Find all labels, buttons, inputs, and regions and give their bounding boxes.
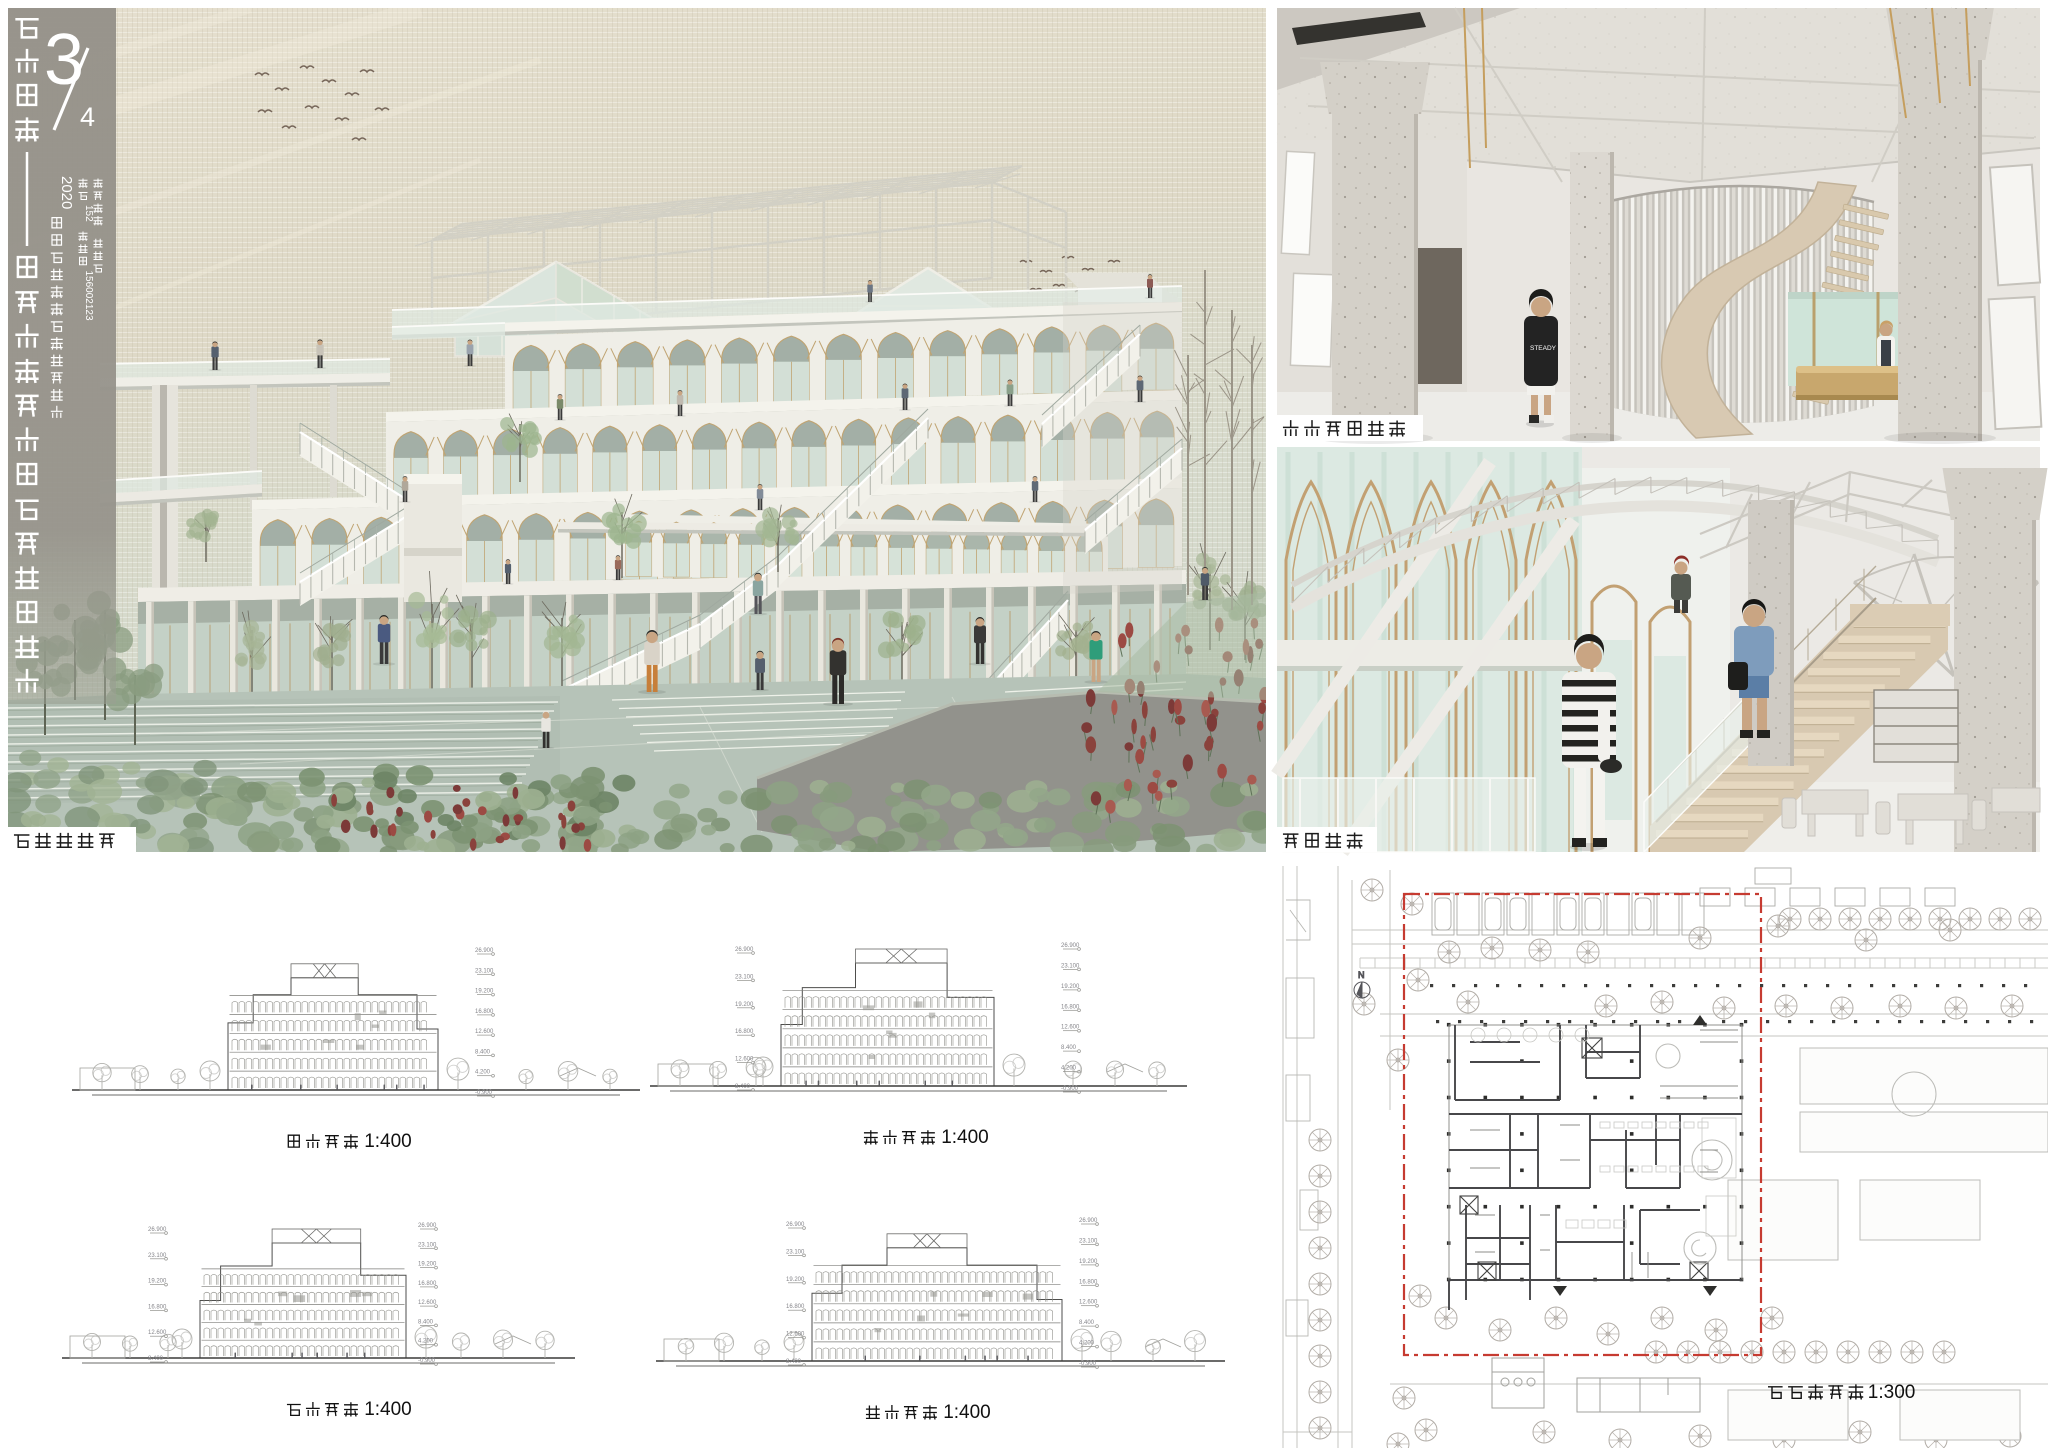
svg-text:-0.900: -0.900 — [475, 1090, 493, 1096]
svg-text:19.200: 19.200 — [148, 1279, 167, 1285]
svg-text:1:300: 1:300 — [1868, 1382, 1916, 1403]
svg-text:4.200: 4.200 — [418, 1339, 434, 1345]
svg-text:19.200: 19.200 — [735, 1002, 754, 1008]
svg-text:16.800: 16.800 — [418, 1281, 437, 1287]
svg-text:1:400: 1:400 — [943, 1402, 991, 1423]
svg-text:8.400: 8.400 — [1061, 1045, 1077, 1051]
svg-text:1:400: 1:400 — [364, 1131, 412, 1152]
svg-text:-0.900: -0.900 — [1079, 1361, 1097, 1367]
svg-text:4.200: 4.200 — [1061, 1066, 1077, 1072]
svg-text:156002123: 156002123 — [83, 271, 94, 321]
svg-text:23.100: 23.100 — [148, 1253, 167, 1259]
svg-text:8.400: 8.400 — [475, 1049, 491, 1055]
svg-text:19.200: 19.200 — [1061, 984, 1080, 990]
svg-text:26.900: 26.900 — [475, 948, 494, 954]
svg-text:19.200: 19.200 — [1079, 1259, 1098, 1265]
svg-text:19.200: 19.200 — [786, 1277, 805, 1283]
svg-text:STEADY: STEADY — [1530, 345, 1557, 352]
svg-text:-0.900: -0.900 — [1061, 1086, 1079, 1092]
svg-text:16.800: 16.800 — [786, 1304, 805, 1310]
svg-text:26.900: 26.900 — [735, 947, 754, 953]
svg-text:3: 3 — [44, 20, 84, 100]
svg-text:23.100: 23.100 — [786, 1249, 805, 1255]
svg-text:12.600: 12.600 — [475, 1029, 494, 1035]
svg-text:1:400: 1:400 — [364, 1399, 412, 1420]
svg-text:4: 4 — [80, 102, 95, 132]
svg-text:23.100: 23.100 — [1079, 1238, 1098, 1244]
svg-text:4.200: 4.200 — [1079, 1341, 1095, 1347]
svg-text:12.600: 12.600 — [148, 1330, 167, 1336]
svg-text:26.900: 26.900 — [418, 1223, 437, 1229]
svg-text:2020: 2020 — [58, 176, 75, 209]
svg-text:26.900: 26.900 — [786, 1222, 805, 1228]
svg-text:8.400: 8.400 — [418, 1319, 434, 1325]
svg-text:16.800: 16.800 — [735, 1029, 754, 1035]
svg-text:16.800: 16.800 — [148, 1304, 167, 1310]
svg-text:16.800: 16.800 — [1061, 1004, 1080, 1010]
svg-text:8.400: 8.400 — [786, 1359, 802, 1365]
svg-text:23.100: 23.100 — [475, 968, 494, 974]
svg-text:152: 152 — [83, 205, 94, 222]
svg-text:23.100: 23.100 — [418, 1242, 437, 1248]
svg-text:12.600: 12.600 — [1061, 1025, 1080, 1031]
svg-text:12.600: 12.600 — [786, 1332, 805, 1338]
svg-text:26.900: 26.900 — [1079, 1218, 1098, 1224]
svg-text:-0.900: -0.900 — [418, 1358, 436, 1364]
svg-text:8.400: 8.400 — [1079, 1320, 1095, 1326]
svg-text:8.400: 8.400 — [735, 1084, 751, 1090]
svg-text:23.100: 23.100 — [735, 974, 754, 980]
svg-text:N: N — [1358, 970, 1365, 980]
svg-text:16.800: 16.800 — [1079, 1279, 1098, 1285]
svg-text:12.600: 12.600 — [418, 1300, 437, 1306]
svg-text:1:400: 1:400 — [941, 1127, 989, 1148]
svg-text:12.600: 12.600 — [1079, 1300, 1098, 1306]
svg-text:12.600: 12.600 — [735, 1057, 754, 1063]
svg-text:19.200: 19.200 — [418, 1262, 437, 1268]
svg-text:26.900: 26.900 — [1061, 943, 1080, 949]
svg-text:16.800: 16.800 — [475, 1009, 494, 1015]
svg-text:19.200: 19.200 — [475, 989, 494, 995]
svg-text:23.100: 23.100 — [1061, 963, 1080, 969]
svg-text:8.400: 8.400 — [148, 1356, 164, 1362]
svg-text:26.900: 26.900 — [148, 1227, 167, 1233]
svg-text:4.200: 4.200 — [475, 1070, 491, 1076]
